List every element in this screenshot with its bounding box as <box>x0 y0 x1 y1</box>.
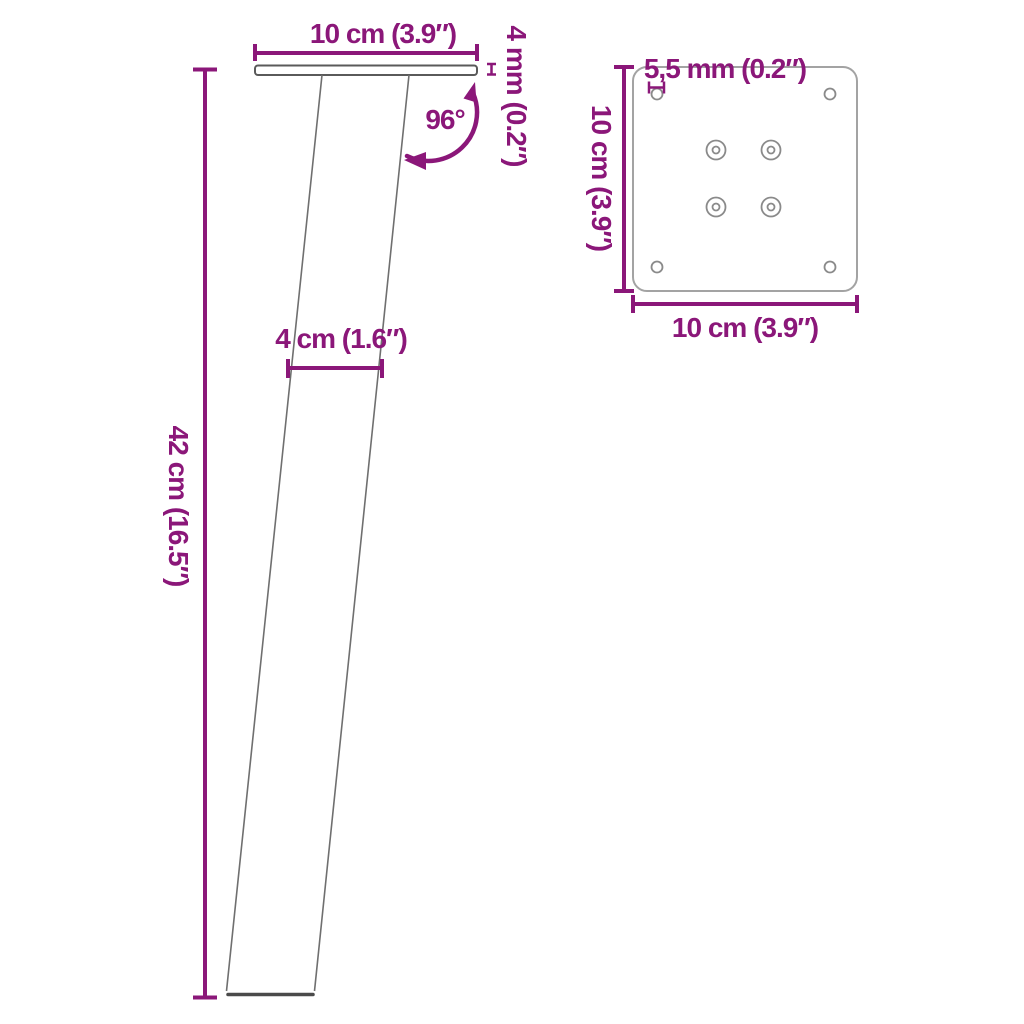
center-rivet <box>707 141 726 160</box>
center-rivet <box>707 198 726 217</box>
corner-hole-top-left <box>652 89 663 100</box>
plate-width-label: 10 cm (3.9″) <box>672 312 818 343</box>
leg-body <box>227 75 410 995</box>
mounting-plate-top-view: 5,5 mm (0.2″) 10 cm (3.9″) 10 cm (3.9″) <box>586 53 857 343</box>
angle-arrow-up-icon <box>464 82 477 103</box>
plate-depth-dimension: 10 cm (3.9″) <box>586 67 634 291</box>
plate-thickness-dimension: 4 mm (0.2″) <box>487 26 532 167</box>
mounting-plate-side-profile <box>255 66 477 76</box>
height-dimension: 42 cm (16.5″) <box>163 70 217 998</box>
hole-diameter-label: 5,5 mm (0.2″) <box>644 53 806 84</box>
plate-thickness-label: 4 mm (0.2″) <box>501 26 532 167</box>
plate-width-dimension: 10 cm (3.9″) <box>633 295 857 343</box>
height-dimension-label: 42 cm (16.5″) <box>163 426 194 587</box>
corner-hole-bottom-right <box>825 262 836 273</box>
plate-depth-label: 10 cm (3.9″) <box>586 105 617 251</box>
leg-right-edge <box>315 75 410 991</box>
corner-hole-bottom-left <box>652 262 663 273</box>
diagram-canvas: 42 cm (16.5″) 10 cm (3.9″) 4 mm (0.2″) <box>0 0 1024 1024</box>
angle-label: 96° <box>425 104 464 135</box>
leg-width-dimension: 4 cm (1.6″) <box>275 323 407 378</box>
rivet-inner-circle <box>768 147 775 154</box>
diagram-page: 42 cm (16.5″) 10 cm (3.9″) 4 mm (0.2″) <box>0 0 1024 1024</box>
center-rivet <box>762 141 781 160</box>
leg-side-view: 42 cm (16.5″) 10 cm (3.9″) 4 mm (0.2″) <box>163 18 532 998</box>
top-width-dimension: 10 cm (3.9″) <box>255 18 477 61</box>
center-rivet <box>762 198 781 217</box>
angle-annotation: 96° <box>404 82 477 170</box>
corner-hole-top-right <box>825 89 836 100</box>
top-width-dimension-label: 10 cm (3.9″) <box>310 18 456 49</box>
leg-width-dimension-label: 4 cm (1.6″) <box>275 323 407 354</box>
leg-left-edge <box>227 75 323 991</box>
rivet-inner-circle <box>713 204 720 211</box>
rivet-inner-circle <box>768 204 775 211</box>
mounting-plate-outline <box>633 67 857 291</box>
rivet-inner-circle <box>713 147 720 154</box>
